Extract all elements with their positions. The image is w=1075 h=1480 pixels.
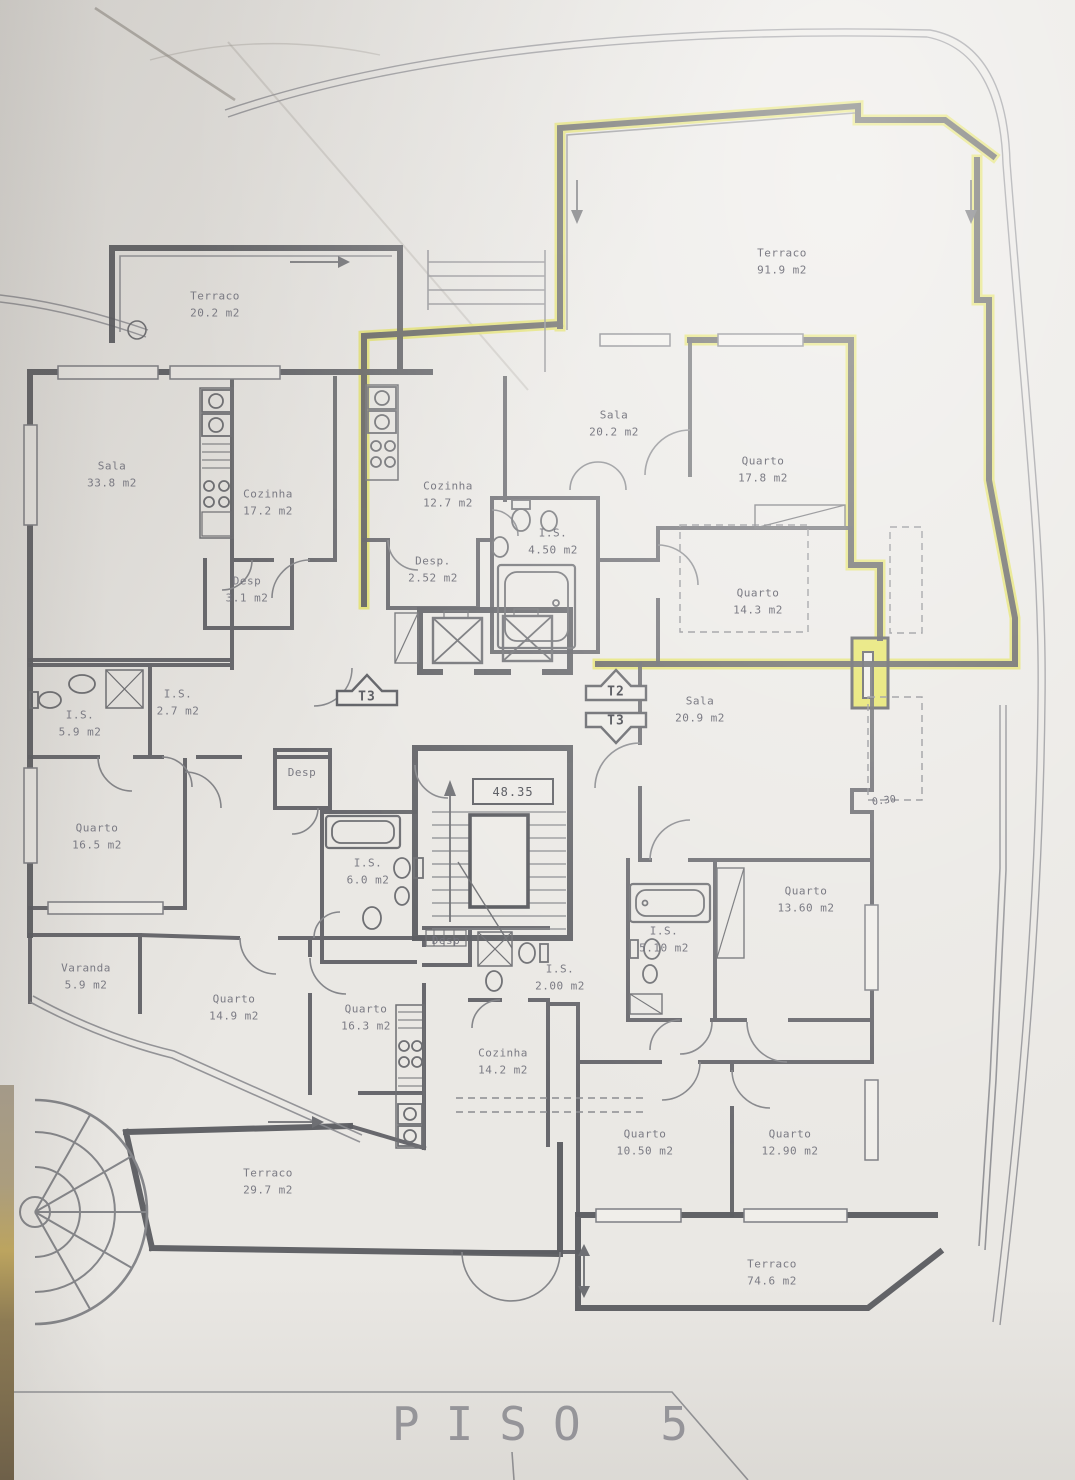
room-label-varanda: Varanda5.9 m2 xyxy=(61,961,111,994)
unit-arrow-label-t3-down: T3 xyxy=(607,714,625,729)
room-label-cozinha-2: Cozinha12.7 m2 xyxy=(423,479,473,512)
drawing-title: PISO 5 xyxy=(392,1397,714,1451)
room-label-desp-2: Desp.2.52 m2 xyxy=(408,554,458,587)
room-label-quarto-1360: Quarto13.60 m2 xyxy=(778,884,835,917)
floor-plan-drawing xyxy=(0,0,1075,1480)
room-label-desp-4: Desp xyxy=(432,933,461,950)
room-label-cozinha-1: Cozinha17.2 m2 xyxy=(243,487,293,520)
room-label-sala-1: Sala33.8 m2 xyxy=(87,459,137,492)
room-label-cozinha-3: Cozinha14.2 m2 xyxy=(478,1046,528,1079)
unit-arrow-label-t3-up: T3 xyxy=(358,690,376,705)
unit-arrow-symbols xyxy=(337,670,646,743)
room-label-quarto-165: Quarto16.5 m2 xyxy=(72,821,122,854)
unit-arrow-label-t2-up: T2 xyxy=(607,685,625,700)
room-label-quarto-1050: Quarto10.50 m2 xyxy=(617,1127,674,1160)
room-label-is-59: I.S.5.9 m2 xyxy=(59,708,102,741)
room-label-terraco-2: Terraco91.9 m2 xyxy=(757,246,807,279)
room-label-is-27: I.S.2.7 m2 xyxy=(157,687,200,720)
room-label-quarto-178: Quarto17.8 m2 xyxy=(738,454,788,487)
room-label-is-200: I.S.2.00 m2 xyxy=(535,962,585,995)
room-label-terraco-4: Terraco74.6 m2 xyxy=(747,1257,797,1290)
room-label-terraco-1: Terraco20.2 m2 xyxy=(190,289,240,322)
room-label-desp-3: Desp xyxy=(288,765,317,782)
stair-level-marker: 48.35 xyxy=(492,785,533,799)
room-label-desp-1: Desp3.1 m2 xyxy=(226,574,269,607)
room-label-sala-2: Sala20.2 m2 xyxy=(589,408,639,441)
room-label-terraco-3: Terraco29.7 m2 xyxy=(243,1166,293,1199)
room-label-is-450: I.S.4.50 m2 xyxy=(528,526,578,559)
room-label-sala-3: Sala20.9 m2 xyxy=(675,694,725,727)
floor-plan-photo: Terraco20.2 m2 Terraco91.9 m2 Sala33.8 m… xyxy=(0,0,1075,1480)
room-label-is-510: I.S.5.10 m2 xyxy=(639,924,689,957)
room-label-quarto-149: Quarto14.9 m2 xyxy=(209,992,259,1025)
room-label-quarto-163: Quarto16.3 m2 xyxy=(341,1002,391,1035)
room-label-quarto-143: Quarto14.3 m2 xyxy=(733,586,783,619)
room-label-is-60: I.S.6.0 m2 xyxy=(347,856,390,889)
room-label-quarto-1290: Quarto12.90 m2 xyxy=(762,1127,819,1160)
fixtures xyxy=(30,321,845,1148)
